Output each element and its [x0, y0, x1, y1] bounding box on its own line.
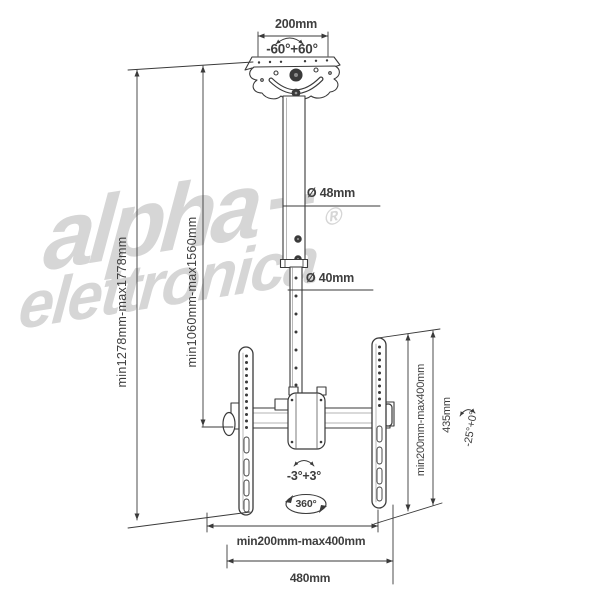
lower-pole-diameter-label: Ø 40mm [306, 271, 354, 285]
right-vesa-rail [372, 338, 386, 508]
rotation-arrow-right [319, 505, 327, 513]
lower-pole [290, 267, 302, 393]
dim-top-width-label: 200mm [275, 17, 317, 31]
pole-height-label: min1060mm-max1560mm [185, 217, 199, 368]
rotation-360-label: 360° [296, 498, 317, 510]
left-end-cap [223, 403, 240, 436]
rotation-arrow-left [285, 495, 293, 503]
swivel-range-label: -60°+60° [266, 42, 318, 57]
mount-drawing [0, 0, 600, 600]
total-width-label: 480mm [290, 571, 330, 585]
tv-ceiling-mount-diagram: alpha+ elettronica® [0, 0, 600, 600]
swivel-housing [250, 66, 340, 100]
vesa-width-label: min200mm-max400mm [237, 534, 366, 548]
tilt-fine-label: -3°+3° [287, 469, 321, 483]
pole-collar [281, 260, 308, 268]
left-vesa-rail [239, 347, 253, 515]
vesa-height-label: min200mm-max400mm [415, 364, 427, 476]
ext-line [128, 62, 253, 70]
ext-line [378, 329, 440, 338]
upper-pole-diameter-label: Ø 48mm [307, 186, 355, 200]
bracket-height-label: 435mm [441, 397, 453, 433]
tilt-fine-arc [294, 461, 314, 467]
overall-height-label: min1278mm-max1778mm [115, 237, 129, 388]
upper-pole [283, 96, 305, 266]
